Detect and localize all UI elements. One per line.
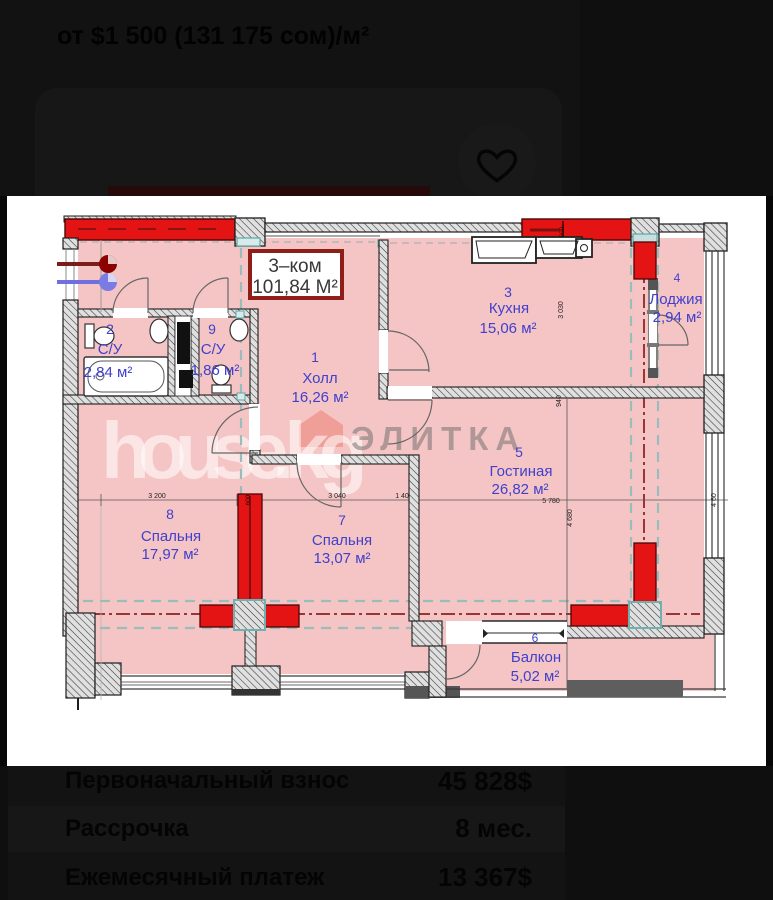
svg-text:7: 7: [338, 512, 346, 528]
svg-text:Холл: Холл: [302, 370, 337, 387]
svg-text:9: 9: [208, 321, 216, 337]
svg-text:Балкон: Балкон: [511, 649, 561, 666]
svg-text:3–ком: 3–ком: [268, 256, 321, 277]
svg-text:3 040: 3 040: [328, 493, 346, 500]
svg-text:3: 3: [504, 284, 512, 300]
svg-text:1 40: 1 40: [395, 493, 409, 500]
svg-text:15,06 м²: 15,06 м²: [479, 320, 536, 337]
svg-text:5: 5: [515, 444, 523, 460]
svg-text:3 030: 3 030: [558, 301, 565, 319]
svg-text:4: 4: [674, 271, 681, 285]
svg-text:2: 2: [106, 321, 114, 337]
svg-text:600: 600: [245, 494, 252, 505]
svg-text:2,94 м²: 2,94 м²: [653, 309, 702, 326]
svg-text:Спальня: Спальня: [312, 532, 372, 549]
svg-text:5 780: 5 780: [542, 498, 560, 505]
svg-text:4 60: 4 60: [711, 493, 718, 507]
svg-text:13,07 м²: 13,07 м²: [313, 550, 370, 567]
svg-text:Лоджия: Лоджия: [649, 291, 702, 308]
svg-text:Гостиная: Гостиная: [490, 463, 553, 480]
svg-text:С/У: С/У: [98, 341, 123, 358]
svg-text:.kg: .kg: [272, 406, 363, 495]
svg-text:3 200: 3 200: [148, 493, 166, 500]
svg-text:2,84 м²: 2,84 м²: [84, 364, 133, 381]
svg-text:5,02 м²: 5,02 м²: [511, 668, 560, 685]
svg-text:4 680: 4 680: [567, 509, 574, 527]
svg-text:26,82 м²: 26,82 м²: [491, 481, 548, 498]
svg-text:С/У: С/У: [201, 341, 226, 358]
svg-text:Спальня: Спальня: [141, 528, 201, 545]
svg-text:101,84 М²: 101,84 М²: [252, 277, 338, 298]
svg-text:ЭЛИТКА: ЭЛИТКА: [351, 420, 526, 457]
svg-text:1,86 м²: 1,86 м²: [191, 362, 240, 379]
svg-text:8: 8: [166, 506, 174, 522]
svg-text:6: 6: [532, 631, 539, 645]
svg-text:1: 1: [311, 349, 319, 365]
svg-text:600: 600: [559, 226, 566, 237]
svg-text:Кухня: Кухня: [489, 300, 529, 317]
svg-text:16,26 м²: 16,26 м²: [291, 389, 348, 406]
svg-text:17,97 м²: 17,97 м²: [141, 546, 198, 563]
svg-text:940: 940: [556, 395, 563, 407]
